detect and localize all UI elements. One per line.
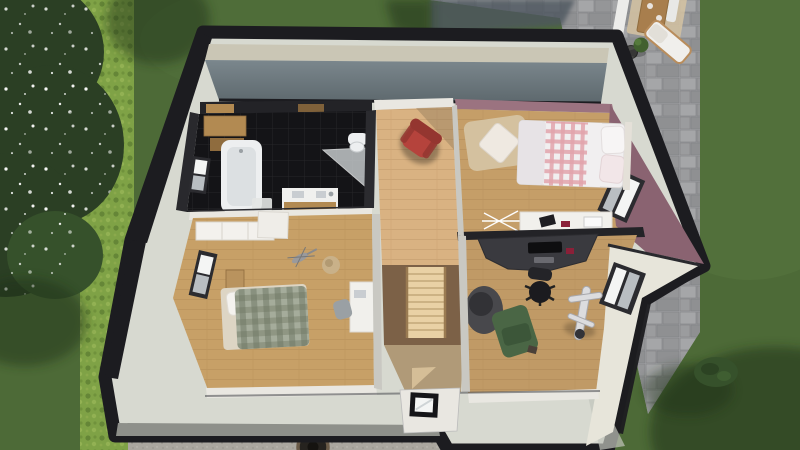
papers xyxy=(584,217,602,227)
stairwell-skylight xyxy=(400,388,460,433)
pink-plaid-duvet xyxy=(544,121,588,186)
pillow xyxy=(599,154,625,184)
roof xyxy=(205,44,609,103)
wall-cabinet-edge xyxy=(206,104,234,113)
keyboard xyxy=(534,257,554,263)
bathroom-cabinet xyxy=(204,116,246,136)
pillow xyxy=(601,126,625,154)
room-landing xyxy=(374,98,463,393)
shrub xyxy=(694,357,738,387)
plaid-duvet xyxy=(234,286,309,350)
scene-canvas xyxy=(0,0,800,450)
house xyxy=(105,32,704,450)
desk-item xyxy=(561,221,570,227)
wall-cabinet-edge xyxy=(298,104,324,112)
roof-slope xyxy=(205,60,607,103)
staircase xyxy=(407,267,445,338)
room-bathroom xyxy=(176,100,376,213)
single-bed xyxy=(220,284,309,350)
monitor xyxy=(528,241,562,253)
wardrobe-corner-unit xyxy=(258,211,289,238)
room-bedroom-left xyxy=(173,208,377,398)
facade-shade xyxy=(116,423,440,436)
desk-item xyxy=(566,248,574,254)
bathroom-right-wall xyxy=(364,110,376,208)
double-bed xyxy=(517,118,632,190)
floorplan-render xyxy=(0,0,800,450)
pouf xyxy=(322,256,340,274)
